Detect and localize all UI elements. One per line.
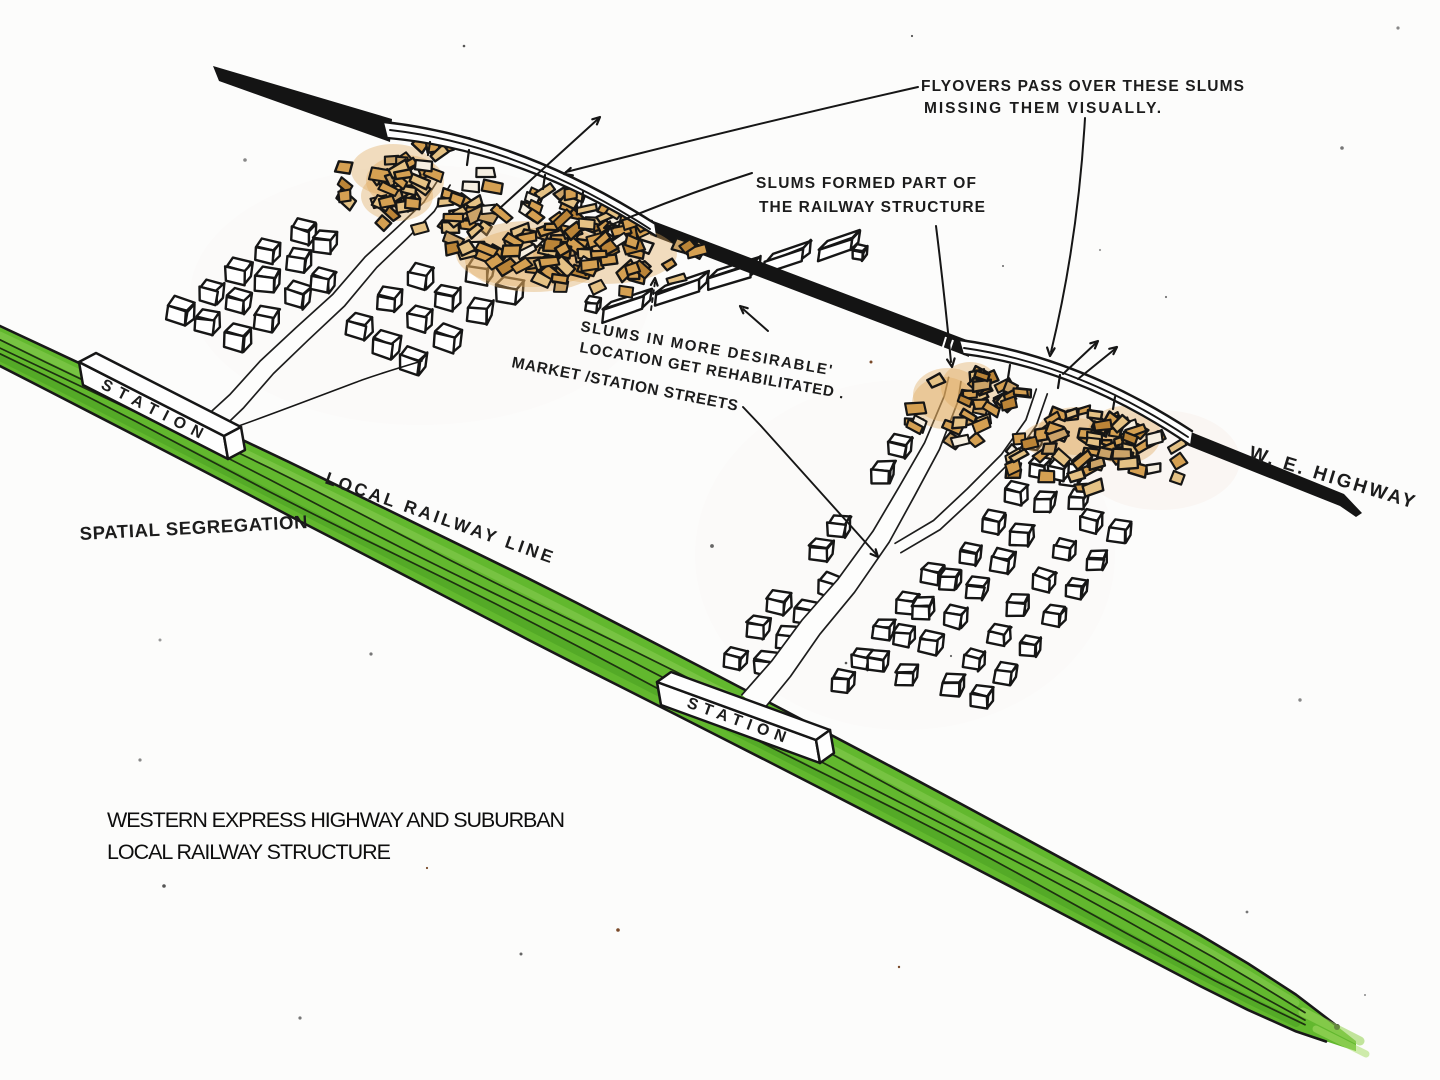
svg-text:FLYOVERS PASS OVER THESE SLUMS: FLYOVERS PASS OVER THESE SLUMS [921, 78, 1244, 95]
svg-text:MISSING THEM VISUALLY.: MISSING THEM VISUALLY. [924, 100, 1161, 117]
svg-text:WESTERN EXPRESS HIGHWAY AND SU: WESTERN EXPRESS HIGHWAY AND SUBURBAN [107, 808, 565, 832]
svg-text:THE RAILWAY STRUCTURE: THE RAILWAY STRUCTURE [759, 199, 985, 216]
svg-text:SLUMS FORMED PART OF: SLUMS FORMED PART OF [756, 175, 976, 192]
svg-text:LOCAL RAILWAY STRUCTURE: LOCAL RAILWAY STRUCTURE [107, 840, 391, 864]
